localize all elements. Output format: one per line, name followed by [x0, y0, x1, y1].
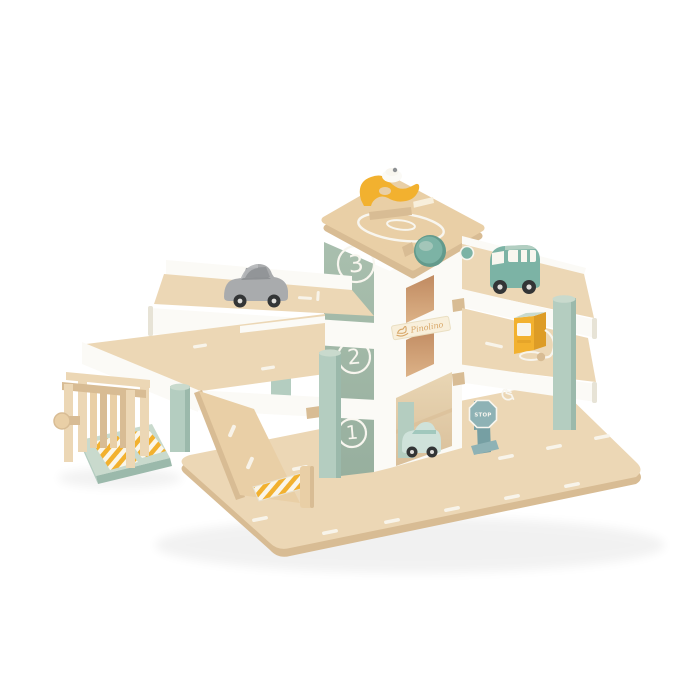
- barrier-end-cap: [592, 318, 597, 339]
- round-sign: [461, 247, 474, 260]
- floor-number-2-text: 2: [346, 344, 361, 369]
- pump-nozzle: [537, 353, 545, 361]
- pillar: [319, 349, 341, 478]
- wooden-peg: [452, 372, 465, 386]
- floor-number-3-text: 3: [347, 249, 365, 278]
- pillar: [553, 295, 577, 430]
- stop-sign-label: STOP: [474, 413, 491, 419]
- tower-corner-trim: [374, 264, 390, 472]
- pump-screen: [517, 323, 531, 336]
- barrier-end-cap: [148, 306, 153, 336]
- helicopter-window: [379, 187, 391, 195]
- product-photo-wooden-garage: 3 2 1 Pinol: [0, 0, 700, 700]
- pillar: [170, 384, 190, 452]
- roller-knob: [54, 413, 80, 429]
- wooden-peg: [306, 406, 321, 419]
- floor-number-1-text: 1: [345, 422, 359, 445]
- main-rotor-hub: [382, 168, 402, 183]
- barrier-end-cap: [592, 382, 597, 403]
- toy-garage-scene: 3 2 1 Pinol: [0, 0, 700, 700]
- teal-van: [490, 245, 540, 294]
- barrier-post: [300, 466, 314, 508]
